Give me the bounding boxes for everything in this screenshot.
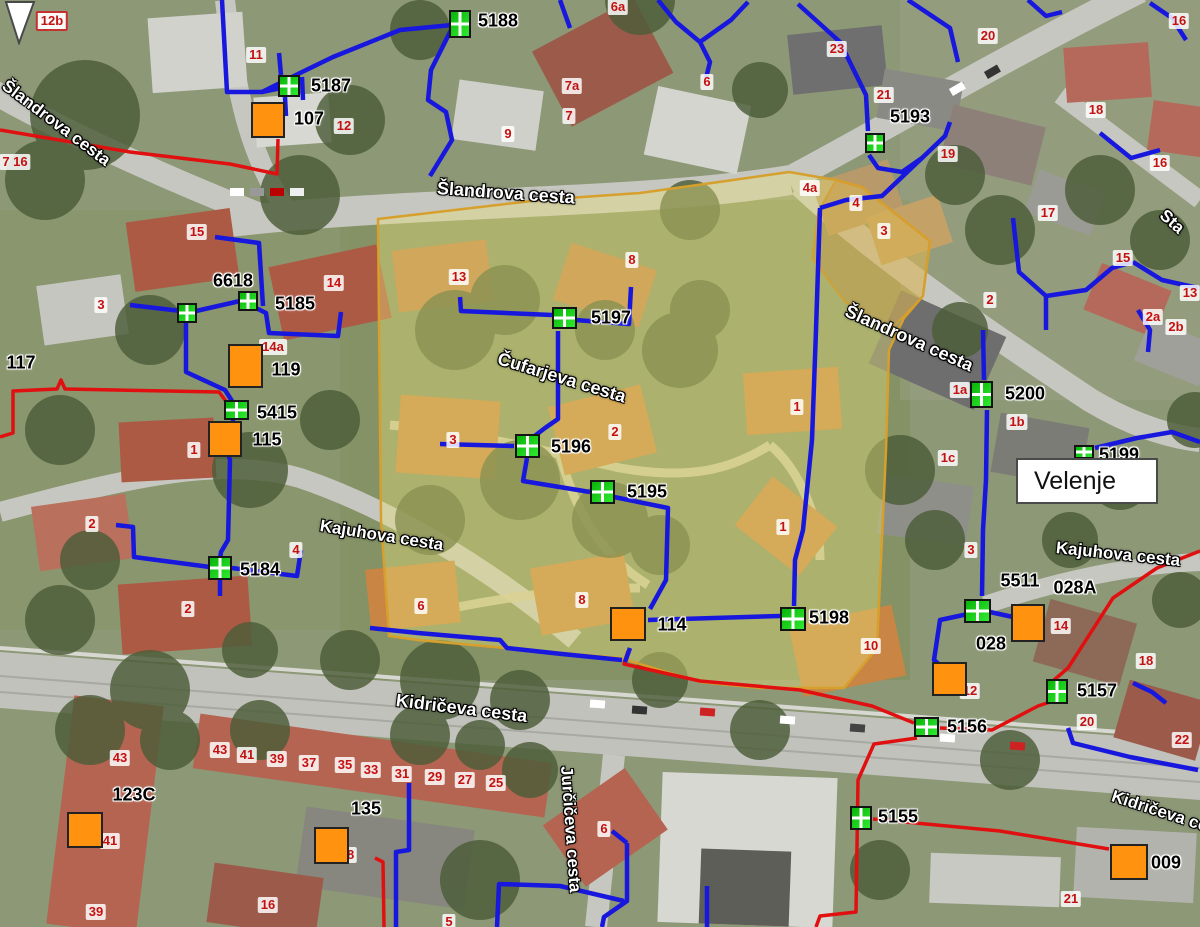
house-number-chip: 13	[449, 269, 469, 285]
house-number-chip: 3	[877, 223, 890, 239]
house-number-chip: 18	[1086, 102, 1106, 118]
street-name-label: Kajuhova cesta	[1055, 538, 1181, 571]
green-marker-5187[interactable]	[278, 75, 300, 97]
feature-id-label: 5155	[878, 807, 918, 828]
house-number-chip: 20	[1077, 714, 1097, 730]
house-number-chip: 27	[455, 772, 475, 788]
feature-id-label: 123C	[112, 785, 155, 806]
house-number-chip: 21	[1061, 891, 1081, 907]
region-callout[interactable]: Velenje	[1016, 458, 1158, 504]
orange-marker-115[interactable]	[208, 421, 242, 457]
house-number-chip: 16	[1150, 155, 1170, 171]
feature-id-label: 5193	[890, 107, 930, 128]
feature-id-label: 119	[271, 360, 300, 381]
feature-id-label: 115	[252, 430, 281, 451]
house-number-chip: 6	[700, 74, 713, 90]
house-number-chip: 2b	[1165, 319, 1186, 335]
house-number-chip: 35	[335, 757, 355, 773]
green-marker-5155[interactable]	[850, 806, 872, 830]
house-number-chip: 43	[110, 750, 130, 766]
green-marker-5199[interactable]	[1074, 445, 1094, 459]
house-number-chip: 3	[94, 297, 107, 313]
street-name-label: Kidričeva cesta	[1109, 786, 1200, 844]
house-number-chip: 31	[392, 766, 412, 782]
green-marker-6618[interactable]	[177, 303, 197, 323]
house-number-chip: 37	[299, 755, 319, 771]
orange-marker-123c[interactable]	[67, 812, 103, 848]
house-number-chip: 5	[442, 914, 455, 927]
feature-id-label: 028	[976, 634, 1006, 655]
orange-marker-114[interactable]	[610, 607, 646, 641]
feature-id-label: 135	[351, 799, 381, 820]
feature-id-label: 5156	[947, 717, 987, 738]
house-number-chip: 21	[874, 87, 894, 103]
feature-id-label: 5195	[627, 482, 667, 503]
house-number-chip: 23	[827, 41, 847, 57]
house-number-chip: 4	[289, 542, 302, 558]
house-number-chip: 1b	[1006, 414, 1027, 430]
house-number-chip: 2	[181, 601, 194, 617]
house-number-chip: 7 16	[0, 154, 31, 170]
feature-id-label: 107	[294, 109, 324, 130]
green-marker-5185[interactable]	[238, 291, 258, 311]
house-number-chip: 2	[608, 424, 621, 440]
feature-id-label: 5198	[809, 608, 849, 629]
house-number-chip: 6	[597, 821, 610, 837]
house-number-chip: 8	[575, 592, 588, 608]
house-number-chip: 9	[501, 126, 514, 142]
house-number-chip: 3	[446, 432, 459, 448]
house-number-chip: 22	[1172, 732, 1192, 748]
green-marker-5198[interactable]	[780, 607, 806, 631]
house-number-chip: 43	[210, 742, 230, 758]
house-number-chip: 17	[1038, 205, 1058, 221]
house-number-chip: 16	[1169, 13, 1189, 29]
house-number-chip: 39	[86, 904, 106, 920]
street-name-label: Šlandrova cesta	[842, 301, 977, 376]
street-name-label: Kidričeva cesta	[395, 690, 529, 727]
map-canvas[interactable]: 12b111297a76a6232021191816164a4317151322…	[0, 0, 1200, 927]
orange-marker-009[interactable]	[1110, 844, 1148, 880]
street-name-label: Čufarjeva cesta	[495, 348, 628, 407]
house-number-chip: 16	[258, 897, 278, 913]
house-number-chip: 15	[187, 224, 207, 240]
house-number-chip: 4	[849, 195, 862, 211]
street-name-label: Šlandrova cesta	[436, 178, 575, 209]
green-marker-5188[interactable]	[449, 10, 471, 38]
callout-pointer	[0, 0, 40, 45]
street-name-label: Jurčičeva cesta	[556, 765, 585, 893]
house-number-chip: 20	[978, 28, 998, 44]
feature-id-label: 5415	[257, 403, 297, 424]
green-marker-5197[interactable]	[552, 307, 577, 329]
orange-marker-028[interactable]	[932, 662, 967, 696]
house-number-chip: 10	[861, 638, 881, 654]
house-number-chip: 14	[1051, 618, 1071, 634]
feature-id-label: 5184	[240, 560, 280, 581]
feature-id-label: 009	[1151, 853, 1181, 874]
house-number-chip: 3	[964, 542, 977, 558]
house-number-chip: 19	[938, 146, 958, 162]
house-number-chip: 14	[324, 275, 344, 291]
green-marker-5184[interactable]	[208, 556, 232, 580]
feature-id-label: 5197	[591, 308, 631, 329]
house-number-chip: 29	[425, 769, 445, 785]
house-number-chip: 2a	[1143, 309, 1163, 325]
region-callout-label: Velenje	[1018, 460, 1156, 502]
green-marker-5415[interactable]	[224, 400, 249, 420]
house-number-chip: 12	[334, 118, 354, 134]
house-number-chip: 12b	[36, 11, 68, 31]
house-number-chip: 8	[625, 252, 638, 268]
house-number-chip: 33	[361, 762, 381, 778]
green-marker-5193[interactable]	[865, 133, 885, 153]
house-number-chip: 6a	[608, 0, 628, 15]
green-marker-5196[interactable]	[515, 434, 540, 458]
feature-id-label: 5188	[478, 11, 518, 32]
street-name-label: Kajuhova cesta	[318, 516, 444, 555]
orange-marker-107[interactable]	[251, 102, 285, 138]
green-marker-5156[interactable]	[914, 717, 939, 737]
feature-id-label: 5157	[1077, 681, 1117, 702]
feature-id-label: 028A	[1053, 578, 1096, 599]
green-marker-5200[interactable]	[970, 381, 993, 408]
feature-id-label: 5196	[551, 437, 591, 458]
orange-marker-135[interactable]	[314, 827, 349, 864]
feature-id-label: 5185	[275, 294, 315, 315]
feature-id-label: 114	[657, 615, 686, 636]
house-number-chip: 1	[790, 399, 803, 415]
house-number-chip: 39	[267, 751, 287, 767]
house-number-chip: 1a	[950, 382, 970, 398]
feature-id-label: 5511	[1000, 571, 1039, 592]
feature-id-label: 5200	[1005, 384, 1045, 405]
house-number-chip: 1	[776, 519, 789, 535]
house-number-chip: 2	[983, 292, 996, 308]
house-number-chip: 18	[1136, 653, 1156, 669]
house-number-chip: 11	[246, 47, 266, 63]
green-marker-5511[interactable]	[964, 599, 991, 623]
house-number-chip: 14a	[259, 339, 287, 355]
house-number-chip: 25	[486, 775, 506, 791]
house-number-chip: 7	[562, 108, 575, 124]
orange-marker-119[interactable]	[228, 344, 263, 388]
green-marker-5195[interactable]	[590, 480, 615, 504]
feature-id-label: 6618	[213, 271, 253, 292]
house-number-chip: 7a	[562, 78, 582, 94]
feature-id-label: 117	[6, 353, 35, 374]
house-number-chip: 4a	[800, 180, 820, 196]
house-number-chip: 1c	[938, 450, 958, 466]
house-number-chip: 6	[414, 598, 427, 614]
street-name-label: Sta	[1155, 206, 1188, 239]
orange-marker-028a[interactable]	[1011, 604, 1045, 642]
house-number-chip: 13	[1180, 285, 1200, 301]
house-number-chip: 15	[1113, 250, 1133, 266]
house-number-chip: 1	[187, 442, 200, 458]
feature-id-label: 5187	[311, 76, 351, 97]
green-marker-5157[interactable]	[1046, 679, 1068, 704]
house-number-chip: 2	[85, 516, 98, 532]
house-number-chip: 41	[237, 747, 257, 763]
